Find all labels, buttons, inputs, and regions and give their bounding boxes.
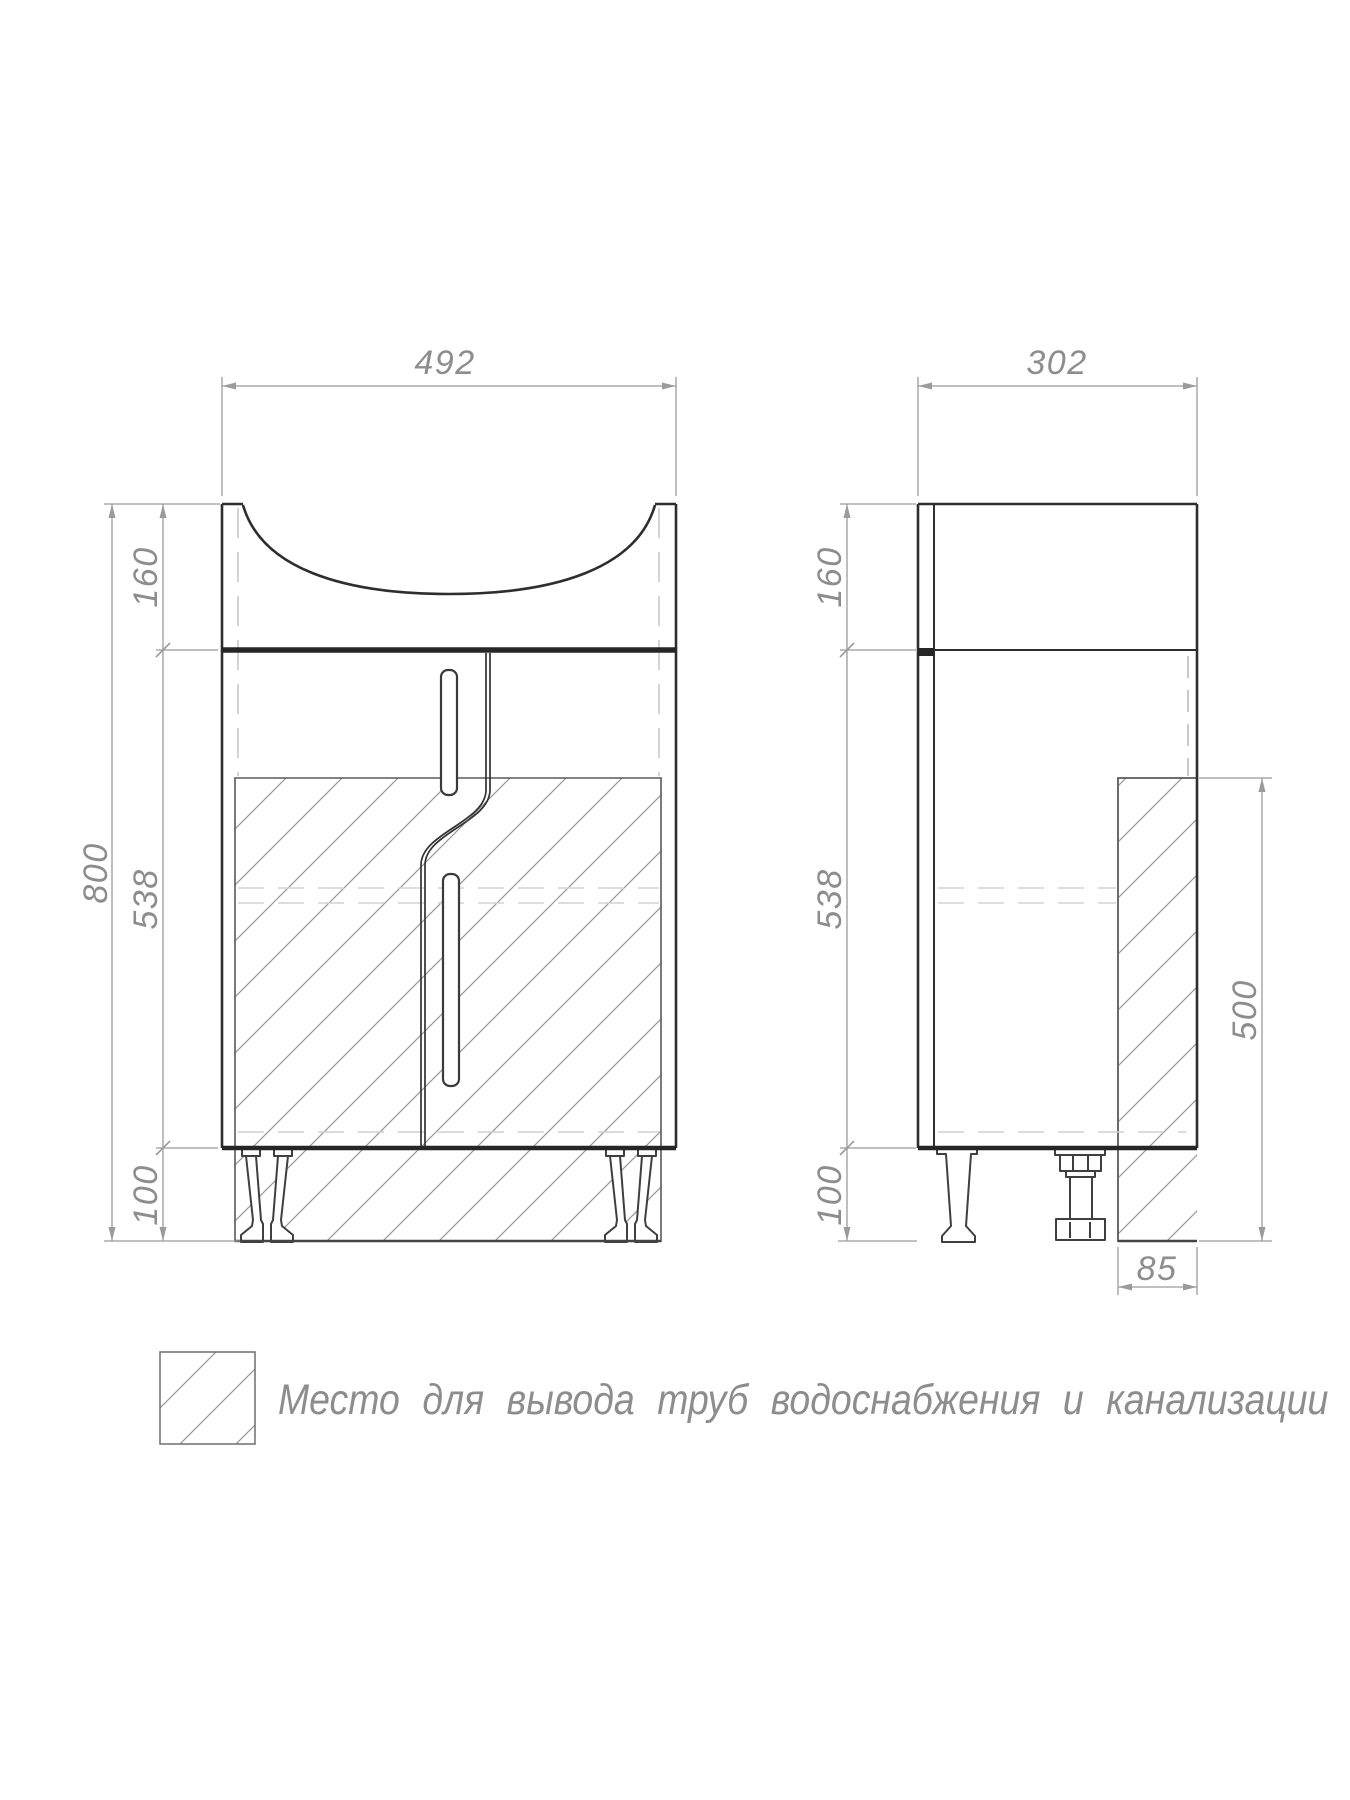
dim-front-top-section: 160 [127, 546, 165, 607]
dim-side-depth: 302 [1026, 344, 1087, 382]
dim-front-width: 492 [414, 344, 475, 382]
dim-front-body: 538 [127, 868, 165, 929]
vanity-technical-drawing: 492 302 800 160 538 100 160 538 100 500 … [0, 0, 1350, 1800]
dim-side-top-section: 160 [811, 546, 849, 607]
legend-note: Место для вывода труб водоснабжения и ка… [278, 1376, 1328, 1424]
side-pipe-zone-hatch [1118, 778, 1197, 1242]
dim-side-legs: 100 [811, 1164, 849, 1225]
dim-pipe-zone-height: 500 [1226, 979, 1264, 1040]
legend-hatch-symbol [160, 1352, 255, 1444]
side-door-gap [918, 648, 934, 656]
door-handle-upper [441, 670, 457, 795]
dim-pipe-zone-depth: 85 [1137, 1250, 1178, 1288]
dim-front-legs: 100 [127, 1164, 165, 1225]
technical-drawing-page: 492 302 800 160 538 100 160 538 100 500 … [0, 0, 1350, 1800]
dim-front-total-height: 800 [77, 842, 115, 903]
dim-side-body: 538 [811, 868, 849, 929]
door-handle-lower [443, 874, 459, 1086]
